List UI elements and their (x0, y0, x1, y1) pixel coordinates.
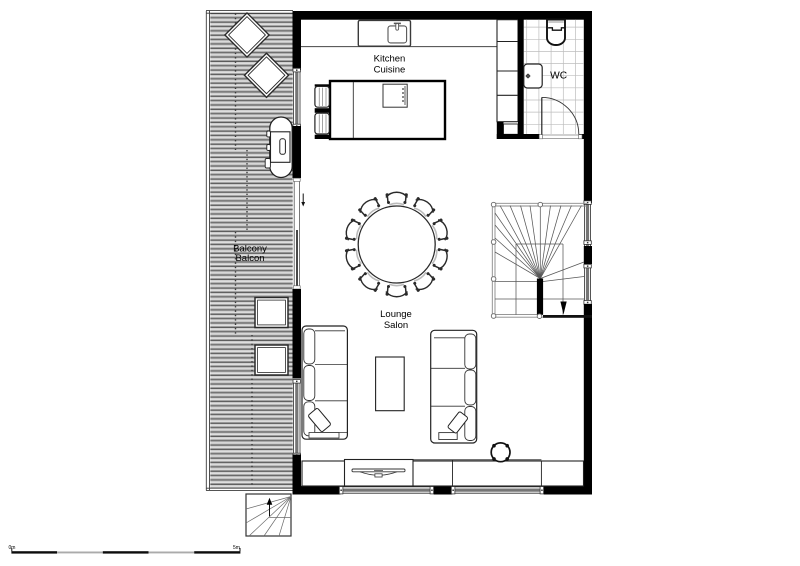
svg-text:WC: WC (550, 71, 567, 82)
svg-text:Lounge: Lounge (380, 309, 412, 320)
svg-text:Balcon: Balcon (235, 253, 264, 264)
svg-text:Salon: Salon (384, 320, 408, 331)
svg-text:Cuisine: Cuisine (374, 64, 406, 75)
svg-text:5m: 5m (233, 545, 240, 551)
svg-text:0m: 0m (9, 545, 16, 551)
svg-text:Kitchen: Kitchen (374, 53, 406, 64)
